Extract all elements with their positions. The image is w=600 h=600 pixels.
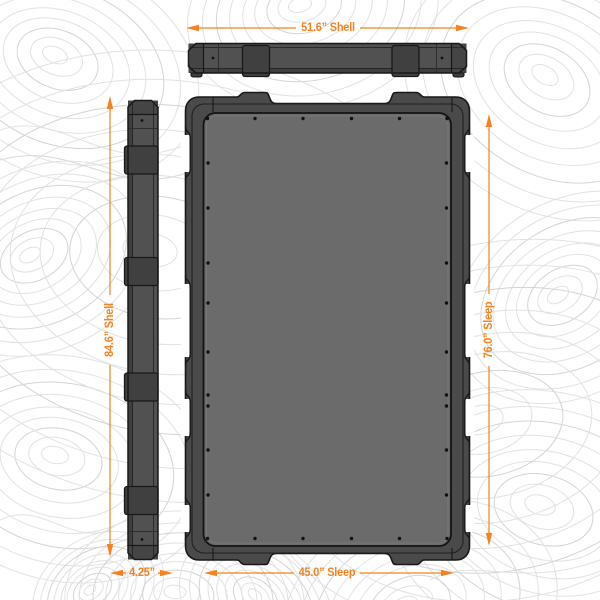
front-profile-view [189, 44, 467, 78]
arrow-right-icon [441, 570, 454, 576]
arrow-down-icon [107, 544, 113, 557]
side-profile-view [125, 101, 159, 560]
mount-block [125, 146, 159, 174]
mount-block [125, 487, 159, 515]
shell-drawing [0, 0, 600, 600]
arrow-right-icon [456, 25, 469, 31]
top-view [181, 93, 474, 565]
arrow-left-icon [186, 25, 199, 31]
arrow-left-icon [110, 570, 123, 576]
mount-block [125, 258, 159, 286]
mount-block [392, 46, 419, 77]
arrow-left-icon [204, 570, 217, 576]
arrow-down-icon [486, 533, 492, 546]
shell-width-label: 51.6” Shell [301, 22, 355, 34]
shell-height-label: 4.25” [129, 567, 155, 579]
shell-length-label: 84.6” Shell [104, 303, 116, 357]
mount-block [125, 373, 159, 401]
arrow-up-icon [107, 96, 113, 109]
sleep-panel [204, 113, 452, 546]
sleep-width-label: 45.0” Sleep [299, 567, 356, 579]
sleep-length-label: 76.0” Sleep [483, 302, 495, 359]
mount-block [243, 46, 270, 77]
arrow-right-icon [160, 570, 173, 576]
arrow-up-icon [486, 114, 492, 127]
dimension-diagram: 51.6” Shell 84.6” Shell 76.0” Sleep 45.0… [0, 0, 600, 600]
